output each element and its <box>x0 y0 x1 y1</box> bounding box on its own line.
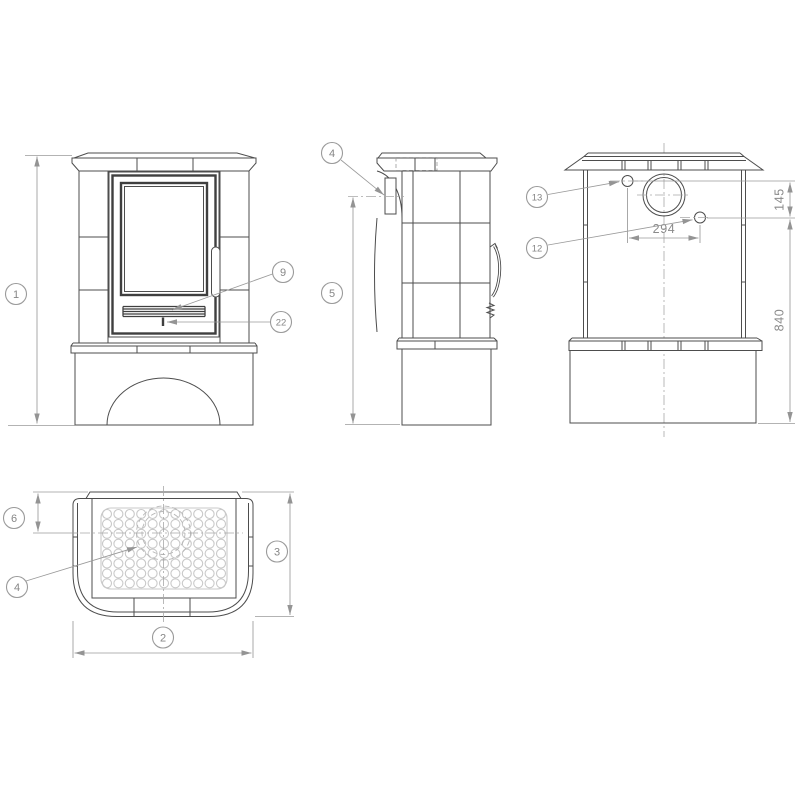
vent-hole <box>182 559 191 568</box>
vent-hole <box>182 579 191 588</box>
balloon-overall-height-label: 1 <box>13 289 19 301</box>
vent-hole <box>103 529 112 538</box>
vent-hole <box>160 529 169 538</box>
vent-hole <box>205 510 214 519</box>
top-view <box>73 486 253 623</box>
vent-hole <box>160 579 169 588</box>
vent-hole <box>125 579 134 588</box>
vent-hole <box>137 579 146 588</box>
vent-hole <box>194 539 203 548</box>
vent-hole <box>125 539 134 548</box>
vent-hole <box>148 519 157 528</box>
vent-hole <box>182 539 191 548</box>
vent-hole <box>194 510 203 519</box>
technical-drawing-page: 1 9 22 5 <box>0 0 800 800</box>
dim-text-145: 145 <box>773 188 787 211</box>
door-glass <box>125 187 204 292</box>
back-view-annotations: 294 145 840 13 12 <box>527 181 796 424</box>
vent-hole <box>205 549 214 558</box>
flue-collar-side <box>385 178 396 214</box>
vent-hole <box>217 559 226 568</box>
door-frame-inner <box>113 176 216 334</box>
vent-hole <box>217 510 226 519</box>
vent-plate-holes <box>103 510 226 588</box>
vent-hole <box>160 549 169 558</box>
vent-hole <box>103 559 112 568</box>
vent-hole <box>114 559 123 568</box>
vent-hole <box>114 569 123 578</box>
vent-hole <box>217 569 226 578</box>
vent-hole <box>171 559 180 568</box>
balloon-depth-label: 3 <box>274 546 280 558</box>
door-frame-outer <box>109 172 219 337</box>
front-tile-joints <box>79 237 249 290</box>
vent-hole <box>114 539 123 548</box>
leader-vent-plate <box>26 547 137 581</box>
back-base-body <box>570 351 756 424</box>
balloon-flue-offset-label: 6 <box>11 513 17 525</box>
back-panel-curve <box>375 218 378 332</box>
balloon-width-label: 2 <box>160 632 166 644</box>
balloon-grille-label: 9 <box>280 267 286 279</box>
vent-hole <box>125 510 134 519</box>
vent-hole <box>194 559 203 568</box>
side-base-body <box>402 349 491 425</box>
vent-hole <box>217 579 226 588</box>
vent-hole <box>217 519 226 528</box>
vent-hole <box>137 529 146 538</box>
vent-hole <box>160 519 169 528</box>
vent-hole <box>205 539 214 548</box>
vent-hole <box>148 539 157 548</box>
stove-technical-drawing: 1 9 22 5 <box>0 0 800 800</box>
vent-hole <box>148 569 157 578</box>
vent-hole <box>171 579 180 588</box>
base-body <box>75 353 253 425</box>
vent-hole <box>137 569 146 578</box>
side-body <box>402 171 490 338</box>
vent-hole <box>125 529 134 538</box>
vent-hole <box>205 519 214 528</box>
back-view <box>565 143 763 437</box>
vent-hole <box>217 539 226 548</box>
vent-hole <box>217 529 226 538</box>
base-molding <box>71 346 257 353</box>
vent-hole <box>171 529 180 538</box>
balloon-lower-hole-label: 12 <box>532 243 543 254</box>
vent-hole <box>205 569 214 578</box>
vent-hole <box>114 519 123 528</box>
dim-text-294: 294 <box>653 222 676 236</box>
vent-hole <box>194 569 203 578</box>
side-view <box>375 153 500 425</box>
vent-hole <box>125 569 134 578</box>
vent-hole <box>148 579 157 588</box>
vent-hole <box>103 510 112 519</box>
front-left-column <box>79 171 108 343</box>
vent-hole <box>160 569 169 578</box>
vent-hole <box>103 519 112 528</box>
ext-lines-145 <box>634 181 795 218</box>
air-vent-grille <box>123 307 205 317</box>
vent-hole <box>194 519 203 528</box>
door-glass-frame <box>121 183 207 295</box>
vent-hole <box>171 569 180 578</box>
vent-hole <box>194 579 203 588</box>
balloon-flue-collar-label: 4 <box>329 148 335 160</box>
vent-hole <box>103 569 112 578</box>
vent-hole <box>171 539 180 548</box>
vent-hole <box>182 510 191 519</box>
front-right-column <box>220 171 249 343</box>
vent-hole <box>114 529 123 538</box>
vent-hole <box>205 529 214 538</box>
vent-hole <box>125 559 134 568</box>
vent-hole <box>194 529 203 538</box>
vent-hole <box>205 559 214 568</box>
door-handle-front <box>212 247 221 297</box>
vent-hole <box>114 510 123 519</box>
vent-hole <box>148 559 157 568</box>
vent-hole <box>217 549 226 558</box>
base-arch <box>107 378 220 425</box>
vent-hole <box>205 579 214 588</box>
front-top-plate <box>72 158 256 171</box>
balloon-latch-label: 22 <box>276 317 287 328</box>
vent-hole <box>103 539 112 548</box>
side-tile-joints <box>402 171 490 338</box>
front-view <box>71 153 257 425</box>
vent-hole <box>114 579 123 588</box>
vent-hole <box>160 510 169 519</box>
dim-text-840: 840 <box>773 309 787 332</box>
vent-hole <box>103 579 112 588</box>
vent-hole <box>148 549 157 558</box>
vent-hole <box>137 549 146 558</box>
vent-hole <box>171 519 180 528</box>
vent-hole <box>125 519 134 528</box>
vent-hole <box>137 559 146 568</box>
balloon-vent-plate-label: 4 <box>14 582 20 594</box>
back-base-molding <box>569 341 762 351</box>
balloon-upper-hole-label: 13 <box>532 192 543 203</box>
back-top-plate <box>565 157 763 171</box>
vent-hole <box>194 549 203 558</box>
leader-flue-collar <box>341 160 384 195</box>
front-top-plate-edge <box>74 153 255 158</box>
top-inner-joints <box>134 598 190 612</box>
vent-hole <box>160 539 169 548</box>
balloon-flue-height-label: 5 <box>329 288 335 300</box>
front-view-annotations: 1 9 22 <box>6 156 294 426</box>
side-base-molding <box>397 341 497 349</box>
back-top-plate-edge <box>584 153 744 157</box>
vent-hole <box>148 529 157 538</box>
vent-hole <box>182 569 191 578</box>
